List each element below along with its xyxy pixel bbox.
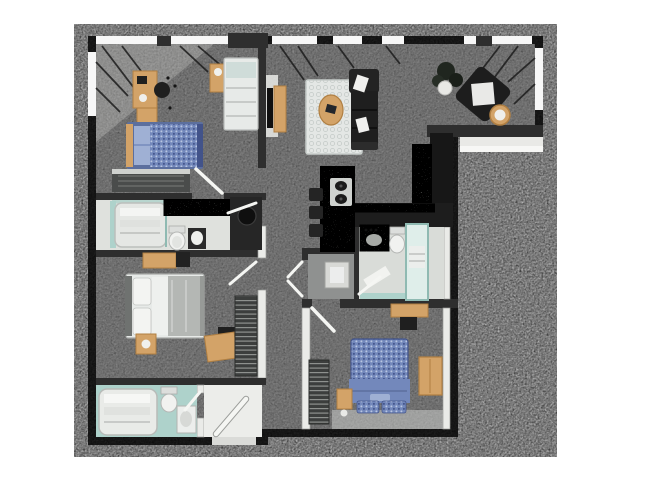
blanket	[168, 276, 202, 336]
toilet	[161, 387, 177, 412]
shower	[406, 224, 428, 300]
utility-closet	[230, 197, 262, 250]
bed-gray	[125, 274, 204, 338]
sink-basin	[366, 234, 382, 246]
toilet	[390, 227, 406, 253]
foot-pillow	[382, 401, 406, 413]
window	[333, 36, 362, 44]
dresser-box	[176, 252, 190, 267]
bar-stool	[309, 224, 323, 237]
counter	[413, 147, 431, 207]
floor-plan	[0, 0, 650, 490]
bed-blue-patterned	[349, 339, 410, 413]
island	[322, 170, 353, 248]
pillow	[226, 62, 256, 78]
vanity-counter	[167, 200, 229, 215]
sofa	[349, 69, 379, 150]
towel	[120, 208, 160, 216]
bathroom-3	[96, 385, 200, 437]
pillow	[133, 308, 151, 335]
front-door-threshold	[212, 437, 256, 445]
bed-white	[224, 58, 258, 130]
window	[96, 36, 157, 44]
headboard	[125, 276, 132, 336]
sink-cabinet	[188, 228, 206, 249]
bathroom-1	[96, 197, 262, 250]
wall-pier	[476, 36, 492, 46]
bed-blue	[126, 122, 203, 169]
bar-stool	[309, 188, 323, 201]
window	[272, 36, 317, 44]
footboard	[200, 276, 204, 336]
window	[382, 36, 404, 44]
tv-console	[274, 86, 286, 132]
desk-chair	[154, 82, 170, 98]
window	[88, 52, 96, 116]
counter-top	[357, 204, 431, 212]
entry	[204, 385, 262, 445]
window	[171, 36, 228, 44]
shelving-unit	[235, 296, 257, 376]
pillow	[133, 278, 151, 305]
wall-pier	[157, 36, 171, 46]
toilet	[169, 226, 185, 250]
window	[464, 36, 476, 44]
towel	[120, 220, 160, 227]
foot-pillow	[357, 401, 379, 413]
lamp	[214, 68, 222, 76]
nightstand	[136, 334, 156, 354]
headboard	[126, 124, 133, 167]
towel	[104, 394, 150, 403]
planter-pot	[438, 81, 452, 95]
lamp	[142, 340, 151, 349]
towels	[409, 246, 425, 268]
dresser	[143, 253, 176, 268]
bathroom-2	[359, 224, 444, 300]
window	[492, 36, 532, 44]
coffee-table	[319, 95, 343, 125]
footboard	[197, 124, 203, 167]
bar-stool	[309, 206, 323, 219]
tv	[267, 88, 273, 128]
window	[535, 48, 543, 110]
dresser	[112, 169, 190, 192]
desk-chair	[400, 317, 417, 330]
headboard-pillow	[351, 339, 408, 381]
floor-plan-canvas	[0, 0, 650, 490]
desk	[204, 332, 237, 362]
wall-pier	[228, 33, 268, 48]
shelving-unit	[309, 360, 329, 424]
side-table	[490, 105, 510, 125]
towel	[104, 407, 150, 415]
